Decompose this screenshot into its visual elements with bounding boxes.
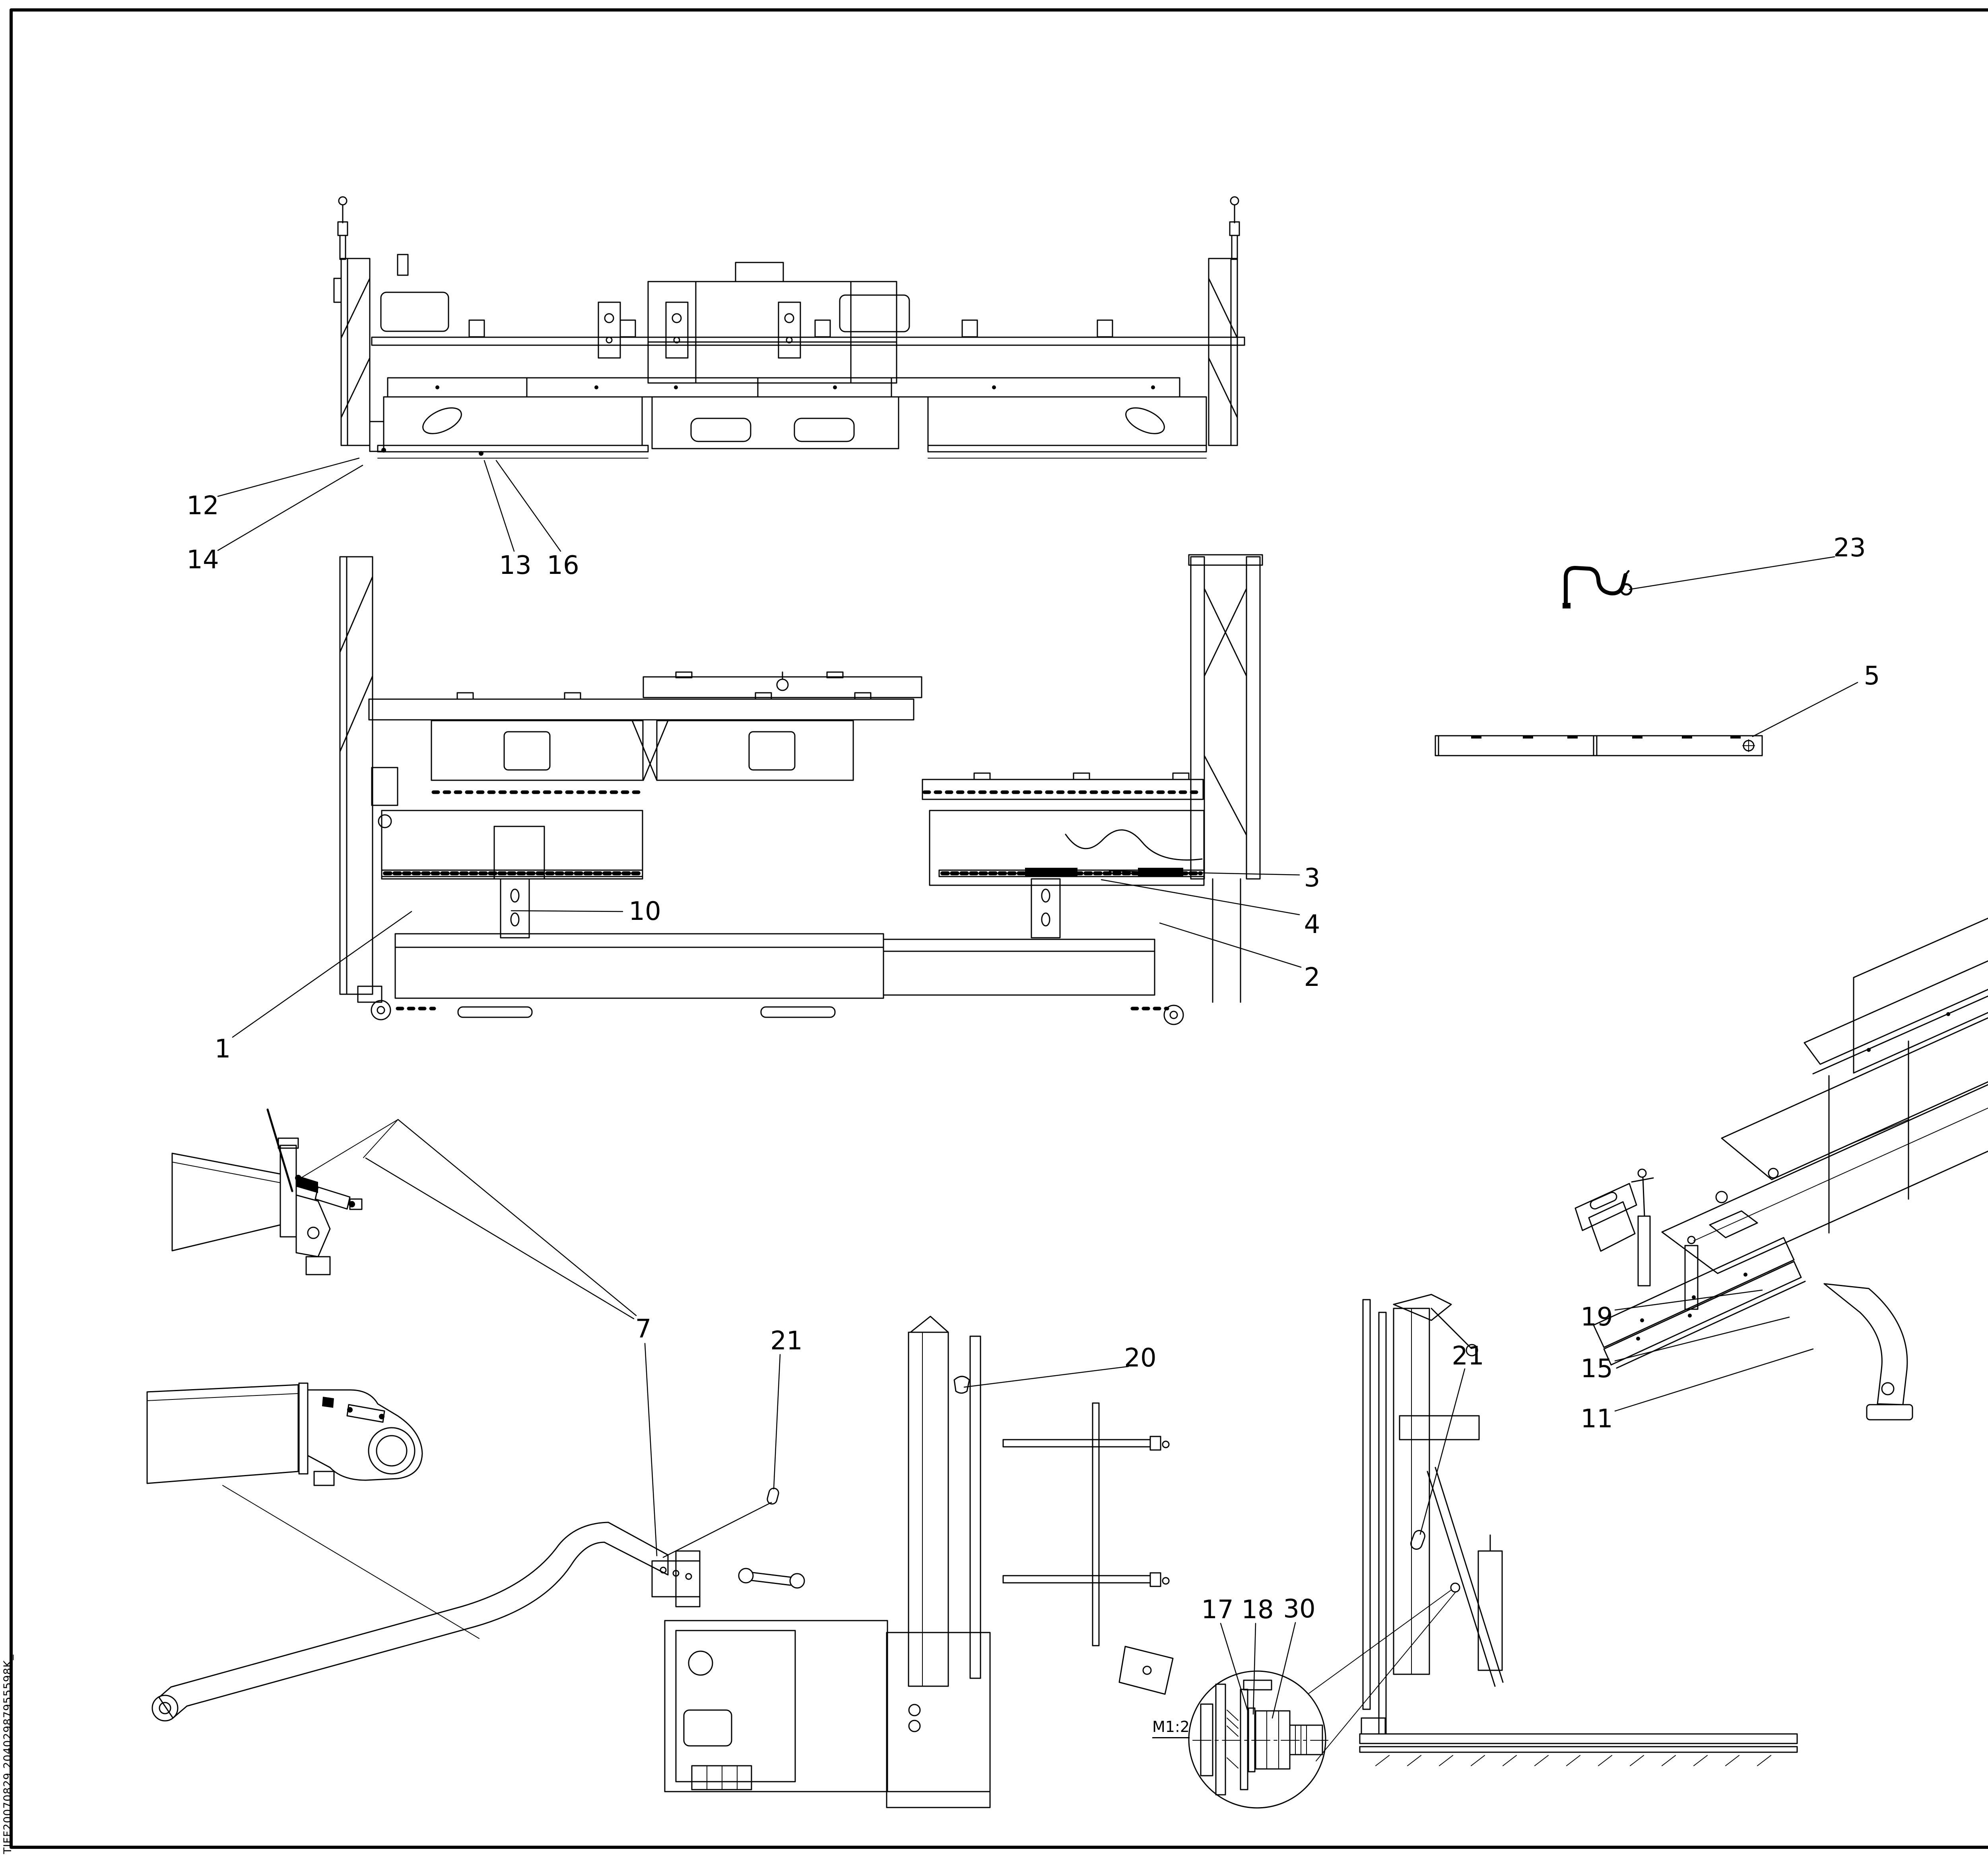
leader-line-11 <box>1615 1349 1813 1411</box>
leader-line-7 <box>645 1343 657 1556</box>
detail-scale-m12: M1:2 <box>1152 1718 1190 1738</box>
callout-14: 14 <box>186 545 219 575</box>
leader-line-14 <box>218 465 363 550</box>
callout-5: 5 <box>1864 661 1880 691</box>
leader-line-7 <box>366 1158 634 1319</box>
leader-line-5 <box>1753 682 1858 737</box>
leader-line-19 <box>1615 1290 1762 1310</box>
view-isometric-screed-extension <box>1575 706 1988 1420</box>
callout-3: 3 <box>1304 863 1320 893</box>
callout-13: 13 <box>499 551 531 580</box>
part-5-wear-strip <box>1435 736 1762 756</box>
edge-file-stamp: TIFF20070829.20402987955598K_ <box>2 1654 14 1854</box>
leader-line-17 <box>1221 1623 1248 1711</box>
drawing-sheet: 12345710101112131415161718192021212330 P… <box>0 0 1988 1860</box>
leader-line-13 <box>484 461 514 551</box>
leader-line-15 <box>1615 1317 1789 1361</box>
view-front-screed-folded <box>340 555 1262 1024</box>
callout-11: 11 <box>1580 1404 1613 1434</box>
leader-line-7 <box>398 1119 636 1316</box>
detail-circle-m12 <box>1189 1671 1328 1808</box>
view-side-section-endplate <box>1309 1294 1797 1766</box>
leader-line-10a <box>511 911 623 912</box>
sheet-frame <box>11 10 1988 1847</box>
callout-17: 17 <box>1201 1595 1233 1625</box>
callout-18: 18 <box>1241 1595 1274 1625</box>
leader-line-18 <box>1253 1623 1256 1714</box>
leader-line-20 <box>964 1366 1128 1387</box>
callout-10a: 10 <box>629 897 661 926</box>
view-tow-arm-assembly <box>152 1316 1173 1808</box>
leader-line-2 <box>1160 923 1301 967</box>
callout-15: 15 <box>1580 1354 1613 1384</box>
callout-21b: 21 <box>1452 1341 1484 1371</box>
callout-20: 20 <box>1124 1343 1156 1373</box>
callout-4: 4 <box>1304 910 1320 939</box>
callout-1: 1 <box>215 1034 231 1064</box>
drawing-canvas: 12345710101112131415161718192021212330 <box>0 0 1988 1860</box>
leader-line-16 <box>496 461 561 551</box>
callout-7: 7 <box>635 1314 652 1344</box>
callout-16: 16 <box>547 551 579 580</box>
part-23-wire-clip <box>1563 568 1631 608</box>
leader-line-21a <box>774 1355 780 1489</box>
callout-2: 2 <box>1304 963 1320 992</box>
callout-21a: 21 <box>770 1326 802 1356</box>
callout-layer: 12345710101112131415161718192021212330 <box>186 89 1988 1718</box>
leader-line-21b <box>1420 1369 1465 1534</box>
callout-12: 12 <box>186 491 219 521</box>
leader-line-12 <box>218 458 359 496</box>
view-front-screed-extended <box>334 197 1244 458</box>
detail-a-mount-bracket <box>172 1110 398 1275</box>
leader-line-30 <box>1272 1623 1295 1718</box>
leader-line-21a <box>663 1502 771 1557</box>
callout-19: 19 <box>1580 1302 1613 1332</box>
detail-b-tow-eye-bracket <box>147 1383 479 1638</box>
callout-30: 30 <box>1283 1594 1315 1624</box>
leader-line-23 <box>1629 557 1835 589</box>
callout-23: 23 <box>1833 533 1866 563</box>
